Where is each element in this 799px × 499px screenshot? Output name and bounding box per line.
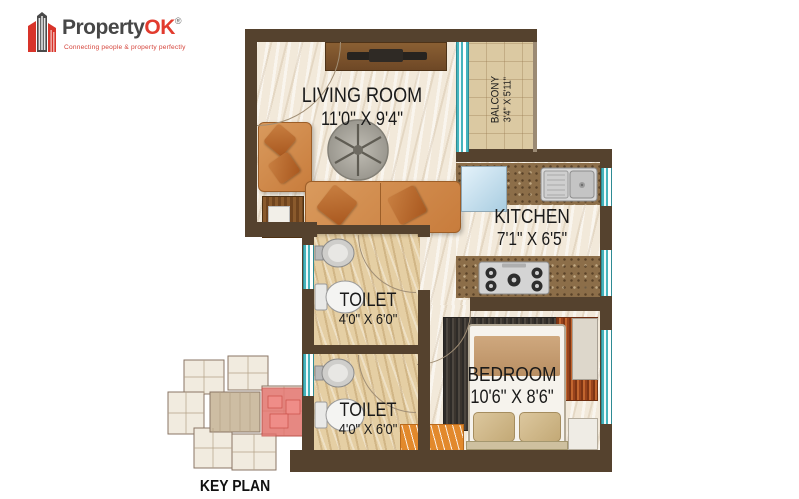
toilet-bottom-label: TOILET 4'0" X 6'0" (323, 400, 412, 439)
bedside-table (568, 418, 598, 450)
wall-top (245, 29, 537, 42)
registered-mark: ® (175, 16, 181, 26)
wall-toilet-right-stub (418, 225, 430, 237)
wall-bedroom-top (470, 297, 612, 311)
kitchen-window-bottom (601, 250, 612, 296)
wall-bottom (290, 450, 612, 472)
wall-toilet-divider (312, 345, 420, 354)
kitchen-name: KITCHEN (472, 206, 592, 228)
brand-logo: PropertyOK® Connecting people & property… (24, 8, 224, 58)
bedroom-name: BEDROOM (448, 364, 577, 386)
wall-left (245, 29, 257, 237)
balcony-dims: 3'4" X 5'11" (503, 60, 515, 141)
key-plan-label: KEY PLAN (200, 478, 270, 496)
bedroom-label: BEDROOM 10'6" X 8'6" (448, 364, 577, 409)
wash-basin-icon (314, 356, 356, 390)
wash-basin-icon (314, 236, 356, 270)
bed-pillow (473, 412, 515, 442)
buildings-icon (26, 10, 58, 54)
living-room-dims: 11'0" X 9'4" (285, 109, 440, 130)
brand-name-ok: OK (144, 16, 175, 39)
balcony-name: BALCONY (489, 60, 502, 141)
balcony-label: BALCONY 3'4" X 5'11" (452, 55, 552, 145)
brand-name-property: Property (62, 16, 144, 39)
living-room-label: LIVING ROOM 11'0" X 9'4" (285, 84, 440, 130)
toilet-top-window (303, 245, 314, 289)
living-room-name: LIVING ROOM (285, 84, 440, 108)
brand-tagline: Connecting people & property perfectly (64, 44, 186, 51)
kitchen-window-top (601, 168, 612, 206)
wall-toilet-top (312, 225, 420, 234)
gas-stove-icon (478, 261, 550, 295)
kitchen-sink-icon (540, 167, 598, 202)
bed-headboard (466, 441, 568, 450)
kitchen-dims: 7'1" X 6'5" (472, 229, 592, 249)
bedroom-dims: 10'6" X 8'6" (448, 387, 577, 408)
sofa-seat-divider (380, 183, 381, 231)
bedroom-window (601, 330, 612, 424)
floor-plan-page: PropertyOK® Connecting people & property… (0, 0, 799, 499)
bed-pillow (519, 412, 561, 442)
toilet-bottom-dims: 4'0" X 6'0" (323, 422, 412, 439)
toilet-top-dims: 4'0" X 6'0" (323, 312, 412, 329)
kitchen-label: KITCHEN 7'1" X 6'5" (472, 206, 592, 250)
toilet-bottom-name: TOILET (323, 400, 412, 421)
wall-toilet-right (418, 290, 430, 460)
toilet-bottom-window (303, 354, 314, 396)
toilet-top-name: TOILET (323, 290, 412, 311)
tv-center-icon (369, 49, 403, 62)
brand-name: PropertyOK® (62, 16, 181, 40)
toilet-top-label: TOILET 4'0" X 6'0" (323, 290, 412, 329)
